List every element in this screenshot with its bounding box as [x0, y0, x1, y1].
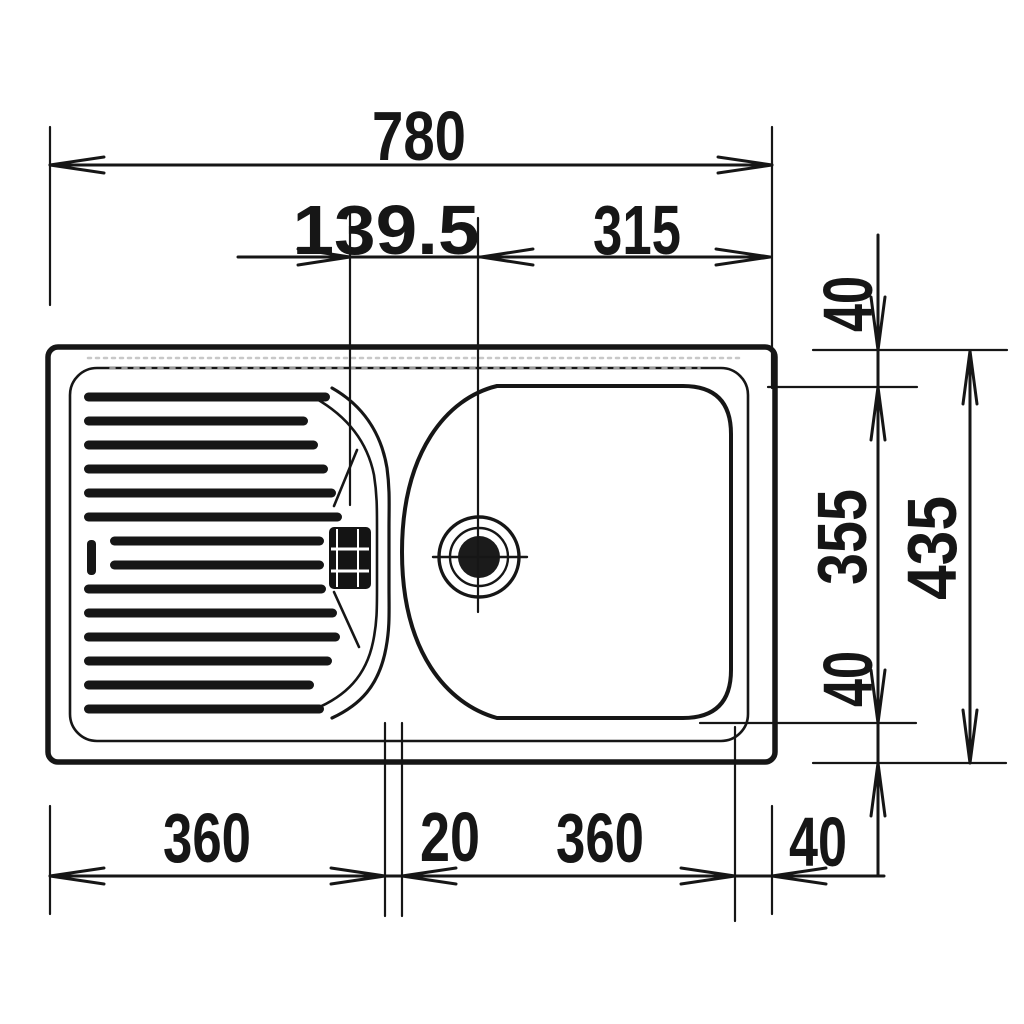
drainer-rib — [84, 489, 336, 498]
drainer-rib — [84, 513, 342, 522]
drain-icon — [433, 517, 527, 597]
sink-outer-edge — [48, 347, 775, 762]
drainer-rib — [110, 561, 324, 570]
drainer-rib — [110, 537, 324, 546]
drainer-rib — [84, 633, 340, 642]
drainer-rib — [84, 393, 330, 402]
drainer-left-notch — [87, 540, 96, 575]
sink-outline — [48, 347, 775, 762]
sink-dimension-drawing-page: 780 139.5 315 40 355 40 435 360 20 360 4… — [0, 0, 1024, 1024]
drainer-rib — [84, 657, 332, 666]
dim-label-divider-to-drain: 139.5 — [293, 191, 480, 269]
dim-label-right-margin: 40 — [789, 803, 847, 881]
dim-label-bottom-margin: 40 — [809, 651, 887, 707]
drainer-rib — [84, 441, 318, 450]
divider-block — [329, 527, 371, 589]
divider-block-body — [329, 527, 371, 589]
dim-label-bowl-width: 360 — [556, 799, 644, 877]
drainer-area — [84, 388, 389, 718]
dim-label-bowl-depth: 355 — [803, 489, 881, 585]
sink-technical-drawing: 780 139.5 315 40 355 40 435 360 20 360 4… — [0, 0, 1024, 1024]
dim-label-drain-to-right-edge: 315 — [593, 191, 681, 269]
divider-crease-upper — [334, 450, 357, 506]
drainer-rib — [84, 465, 328, 474]
dim-label-center-gap: 20 — [420, 798, 480, 876]
drainer-rib — [84, 417, 308, 426]
dim-label-overall-depth: 435 — [893, 496, 971, 600]
bowl-area — [402, 386, 731, 718]
dim-label-top-margin: 40 — [809, 276, 887, 332]
drainer-rib — [84, 609, 337, 618]
dim-label-drainer-width: 360 — [163, 799, 251, 877]
drainer-rib — [84, 585, 326, 594]
dim-label-overall-width: 780 — [372, 97, 466, 175]
drainer-rib — [84, 681, 314, 690]
drainer-rib — [84, 705, 324, 714]
drainer-ribs — [84, 393, 342, 714]
